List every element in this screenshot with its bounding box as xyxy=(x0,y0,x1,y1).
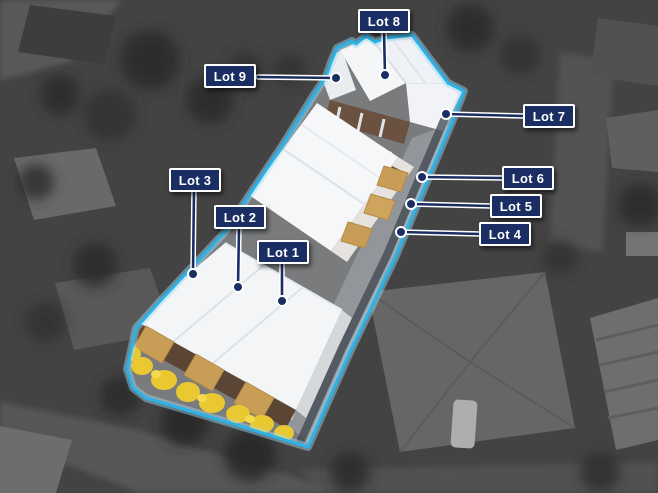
marker-dot-lot-2 xyxy=(233,282,243,292)
lot-1-label-text: Lot 1 xyxy=(267,245,300,260)
lot-7-label: Lot 7 xyxy=(523,104,575,128)
lot-6-label-text: Lot 6 xyxy=(512,171,545,186)
marker-dot-lot-1 xyxy=(277,296,287,306)
marker-dot-lot-4 xyxy=(396,227,406,237)
lot-8-label: Lot 8 xyxy=(358,9,410,33)
lot-5-label-text: Lot 5 xyxy=(500,199,533,214)
lot-1-label: Lot 1 xyxy=(257,240,309,264)
marker-dot-lot-3 xyxy=(188,269,198,279)
lot-2-label-text: Lot 2 xyxy=(224,210,257,225)
lot-3-label-text: Lot 3 xyxy=(179,173,212,188)
lot-4-label: Lot 4 xyxy=(479,222,531,246)
marker-dot-lot-8 xyxy=(380,70,390,80)
aerial-site-plan: Lot 8 Lot 9 Lot 7 Lot 6 Lot 5 Lot 4 Lot … xyxy=(0,0,658,493)
lot-9-label: Lot 9 xyxy=(204,64,256,88)
marker-dot-lot-9 xyxy=(331,73,341,83)
hip-roof-house xyxy=(368,272,575,452)
lot-9-label-text: Lot 9 xyxy=(214,69,247,84)
marker-dot-lot-7 xyxy=(441,109,451,119)
lot-5-label: Lot 5 xyxy=(490,194,542,218)
lot-2-label: Lot 2 xyxy=(214,205,266,229)
lot-3-label: Lot 3 xyxy=(169,168,221,192)
marker-dot-lot-6 xyxy=(417,172,427,182)
marker-dot-lot-5 xyxy=(406,199,416,209)
lot-4-label-text: Lot 4 xyxy=(489,227,522,242)
lot-7-label-text: Lot 7 xyxy=(533,109,566,124)
aerial-photo-scene xyxy=(0,0,658,493)
lot-8-label-text: Lot 8 xyxy=(368,14,401,29)
lot-6-label: Lot 6 xyxy=(502,166,554,190)
